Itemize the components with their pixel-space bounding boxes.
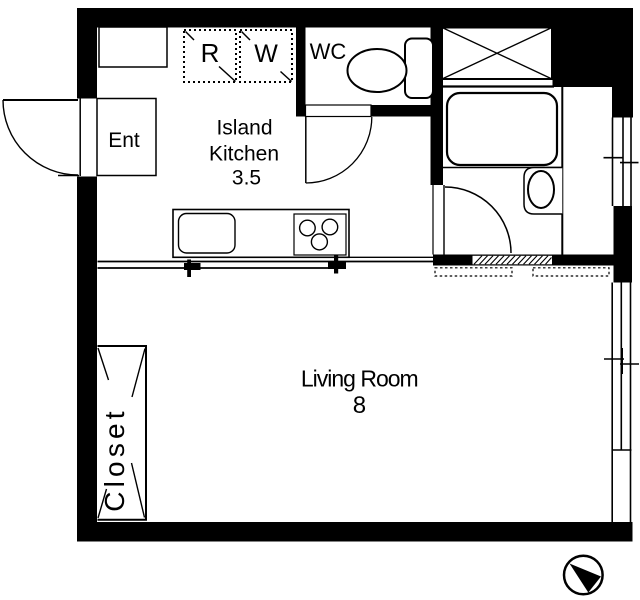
- svg-text:Kitchen: Kitchen: [209, 143, 279, 166]
- svg-text:Island: Island: [216, 117, 272, 140]
- svg-text:R: R: [201, 38, 220, 68]
- svg-text:WC: WC: [310, 39, 347, 64]
- svg-text:3.5: 3.5: [232, 167, 261, 190]
- svg-text:Living Room: Living Room: [301, 366, 418, 392]
- svg-text:Ent: Ent: [108, 129, 140, 152]
- svg-text:Closet: Closet: [99, 407, 130, 512]
- svg-text:W: W: [254, 40, 278, 68]
- svg-text:8: 8: [353, 392, 366, 419]
